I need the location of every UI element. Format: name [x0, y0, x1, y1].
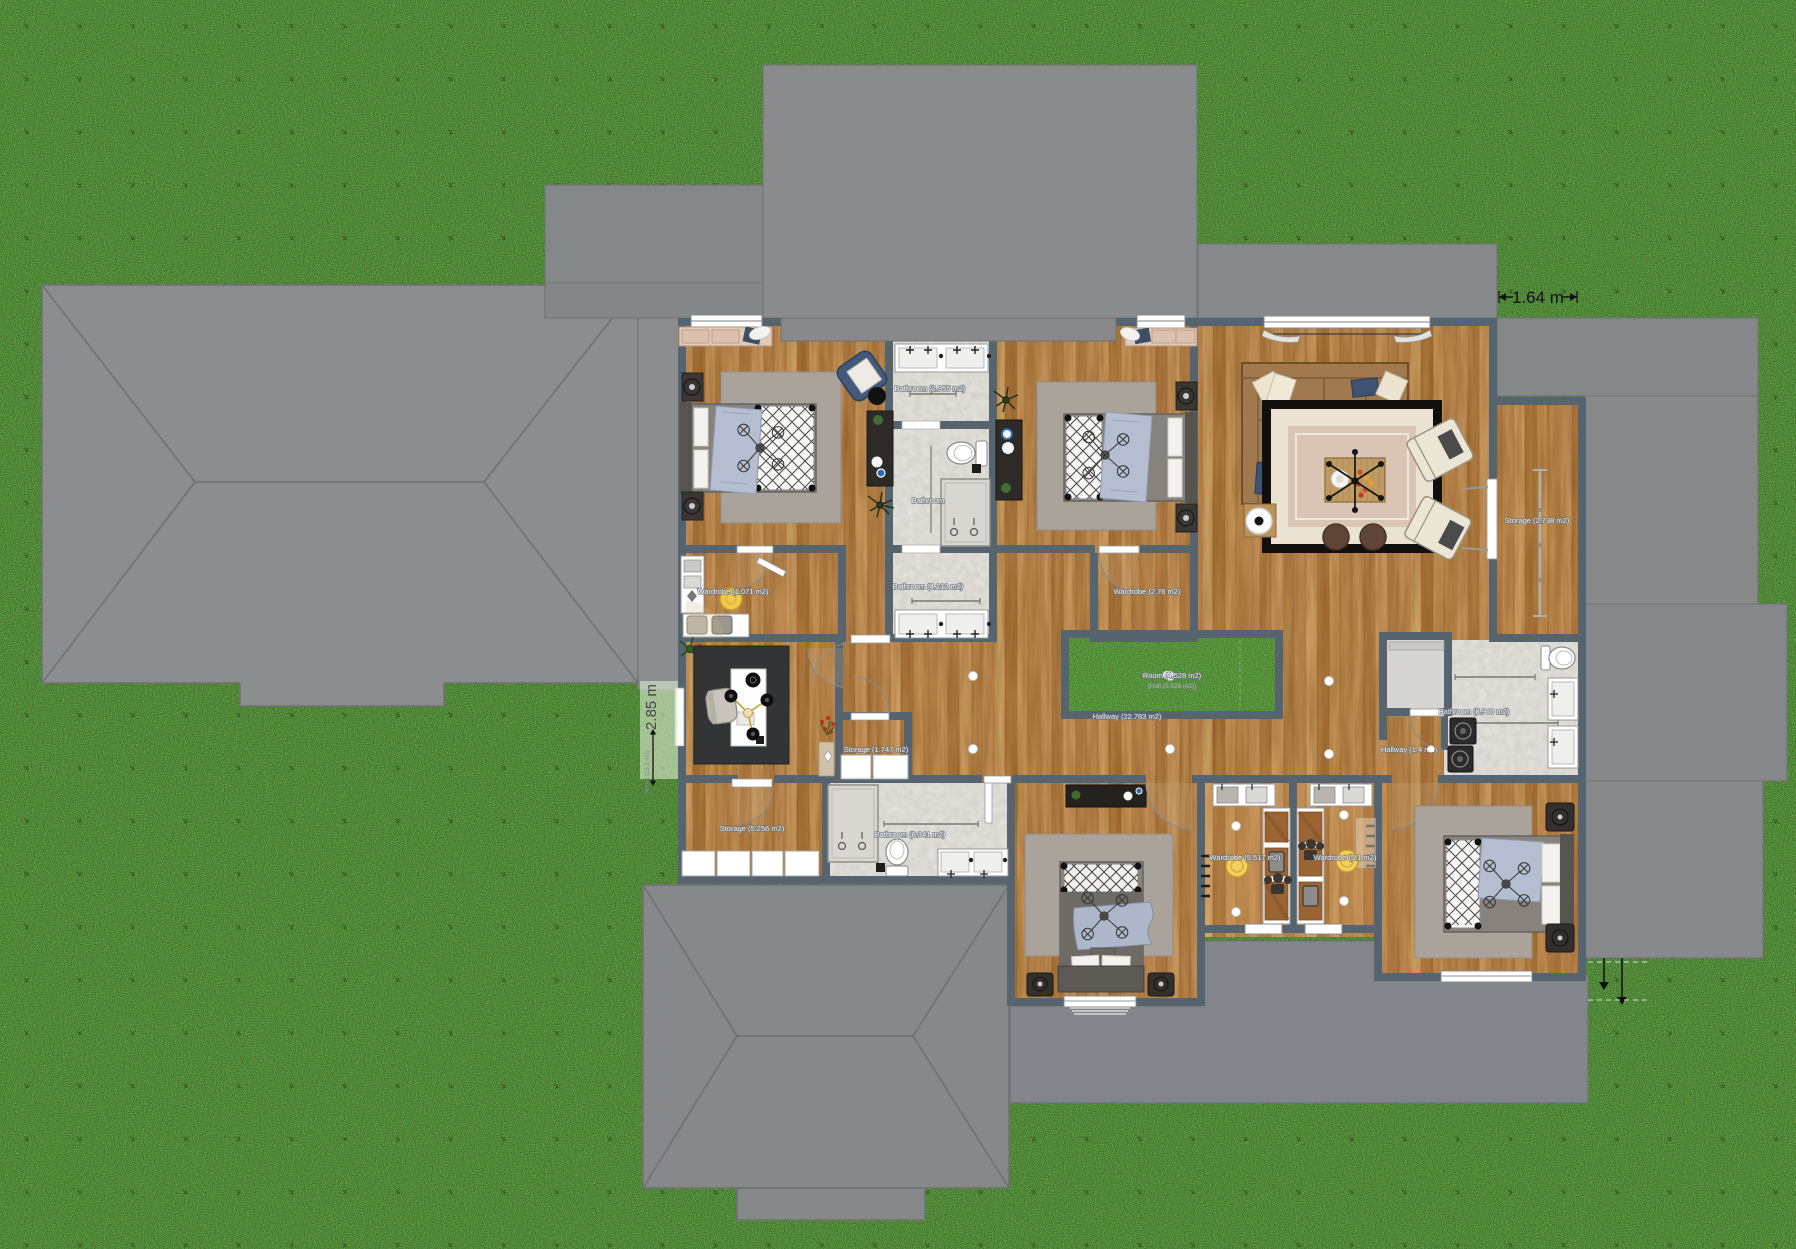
svg-text:Storage (2.738 m2): Storage (2.738 m2)	[1505, 516, 1570, 525]
svg-text:Bathroom (8.960 m2): Bathroom (8.960 m2)	[1439, 707, 1510, 716]
svg-text:2.85 m: 2.85 m	[643, 684, 660, 730]
svg-text:Bathroom: Bathroom	[912, 496, 945, 505]
svg-text:Wardrobe (5.517 m2): Wardrobe (5.517 m2)	[1209, 853, 1281, 862]
svg-text:Storage (1.747 m2): Storage (1.747 m2)	[844, 745, 909, 754]
svg-text:Storage (5.256 m2): Storage (5.256 m2)	[720, 824, 785, 833]
svg-text:Wardrobe (1.071 m2): Wardrobe (1.071 m2)	[697, 587, 769, 596]
svg-text:Room (15.2 m2): Room (15.2 m2)	[645, 750, 651, 793]
svg-text:(Hall (5.528 m2)): (Hall (5.528 m2))	[1148, 683, 1197, 690]
svg-text:Bathroom (4.212 m2): Bathroom (4.212 m2)	[893, 582, 964, 591]
svg-text:Room (4.528 m2): Room (4.528 m2)	[1143, 671, 1202, 680]
svg-text:Bathroom (6.341 m2): Bathroom (6.341 m2)	[875, 830, 946, 839]
svg-text:Wardrobe (5.1 m2): Wardrobe (5.1 m2)	[1314, 853, 1377, 862]
svg-text:Wardrobe (2.76 m2): Wardrobe (2.76 m2)	[1114, 587, 1181, 596]
svg-text:Bathroom (2.955 m2): Bathroom (2.955 m2)	[895, 384, 966, 393]
svg-text:1.64 m: 1.64 m	[1512, 288, 1564, 307]
svg-text:Hallway (22.783 m2): Hallway (22.783 m2)	[1093, 712, 1162, 721]
